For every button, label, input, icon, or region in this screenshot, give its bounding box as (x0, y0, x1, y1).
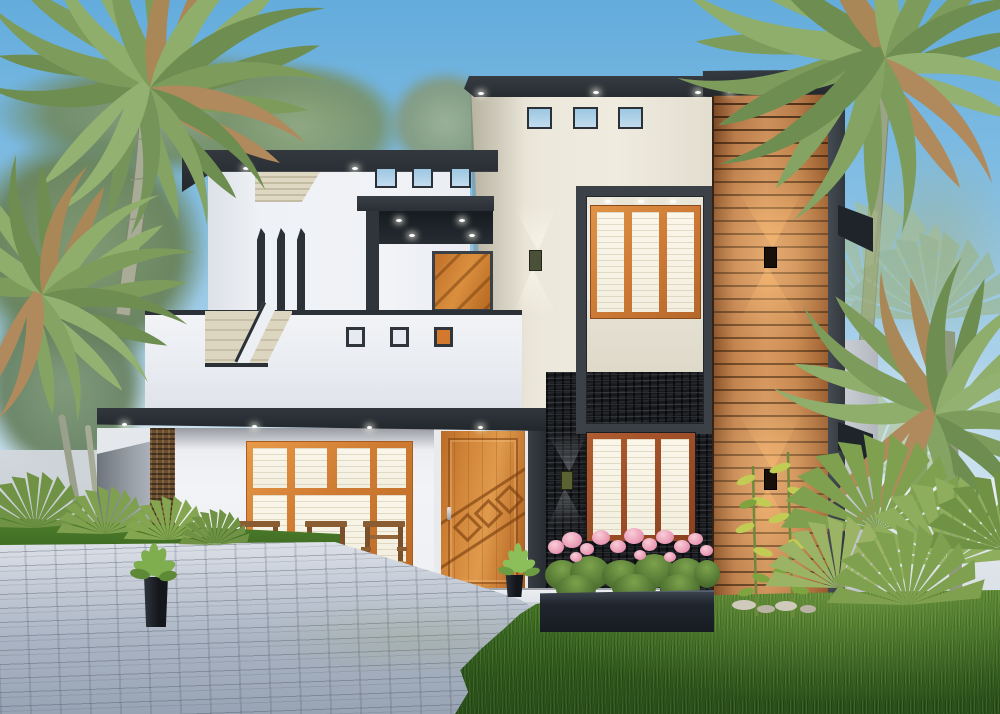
palm-crown-right-top (672, 0, 1000, 234)
vegetation-foreground (0, 0, 1000, 714)
grass-tufts-left (0, 472, 251, 550)
scene-architectural-render (0, 0, 1000, 714)
palm-crown-left (0, 0, 337, 237)
fan-shrubs-right (765, 434, 1000, 617)
